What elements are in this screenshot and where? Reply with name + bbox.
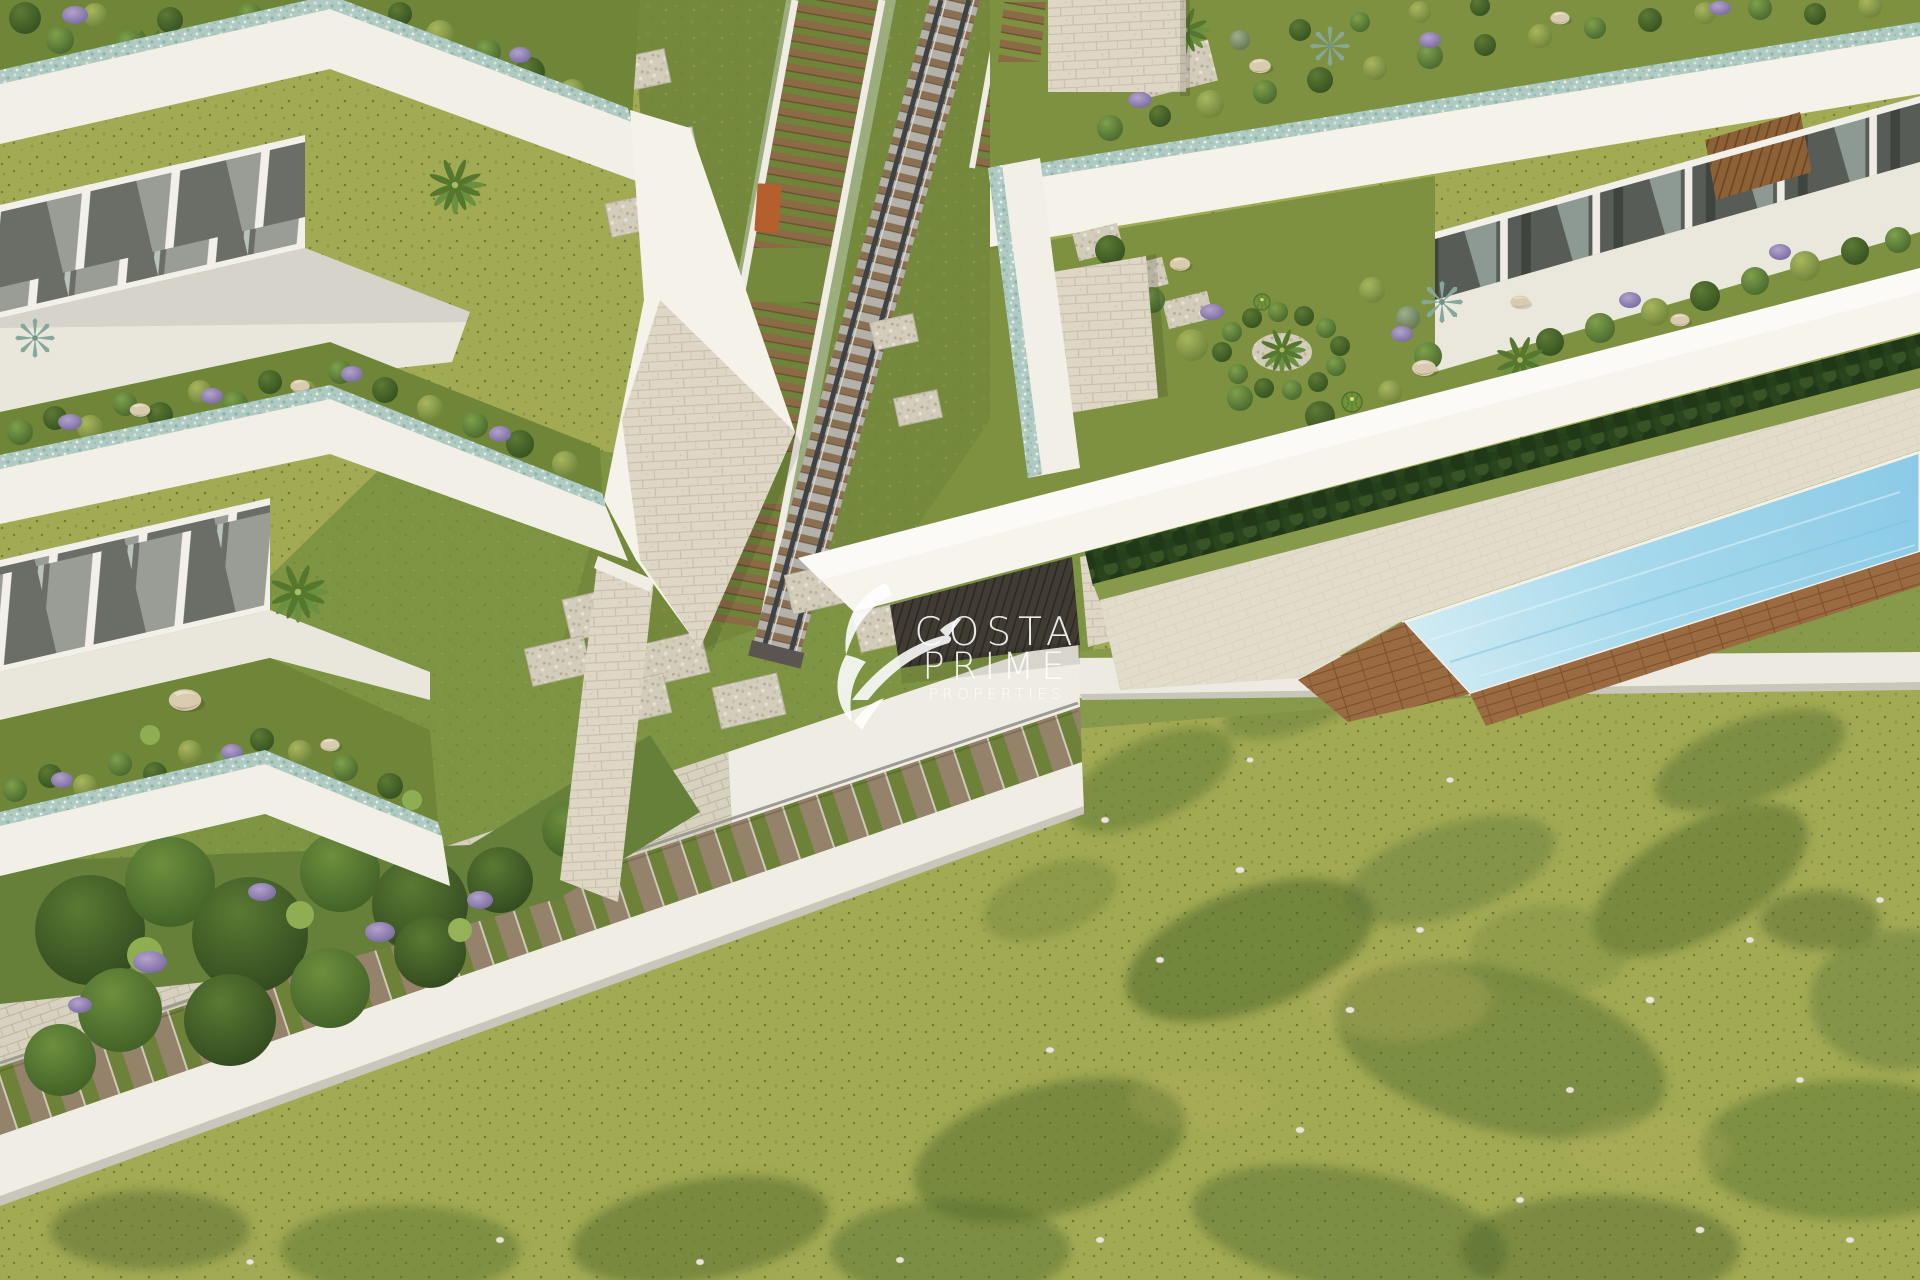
property-render-image: COSTA PRIME PROPERTIES [0,0,1920,1280]
watermark-line3: PROPERTIES [929,685,1066,703]
entry-door [754,183,781,233]
watermark-line2: PRIME [922,645,1071,688]
